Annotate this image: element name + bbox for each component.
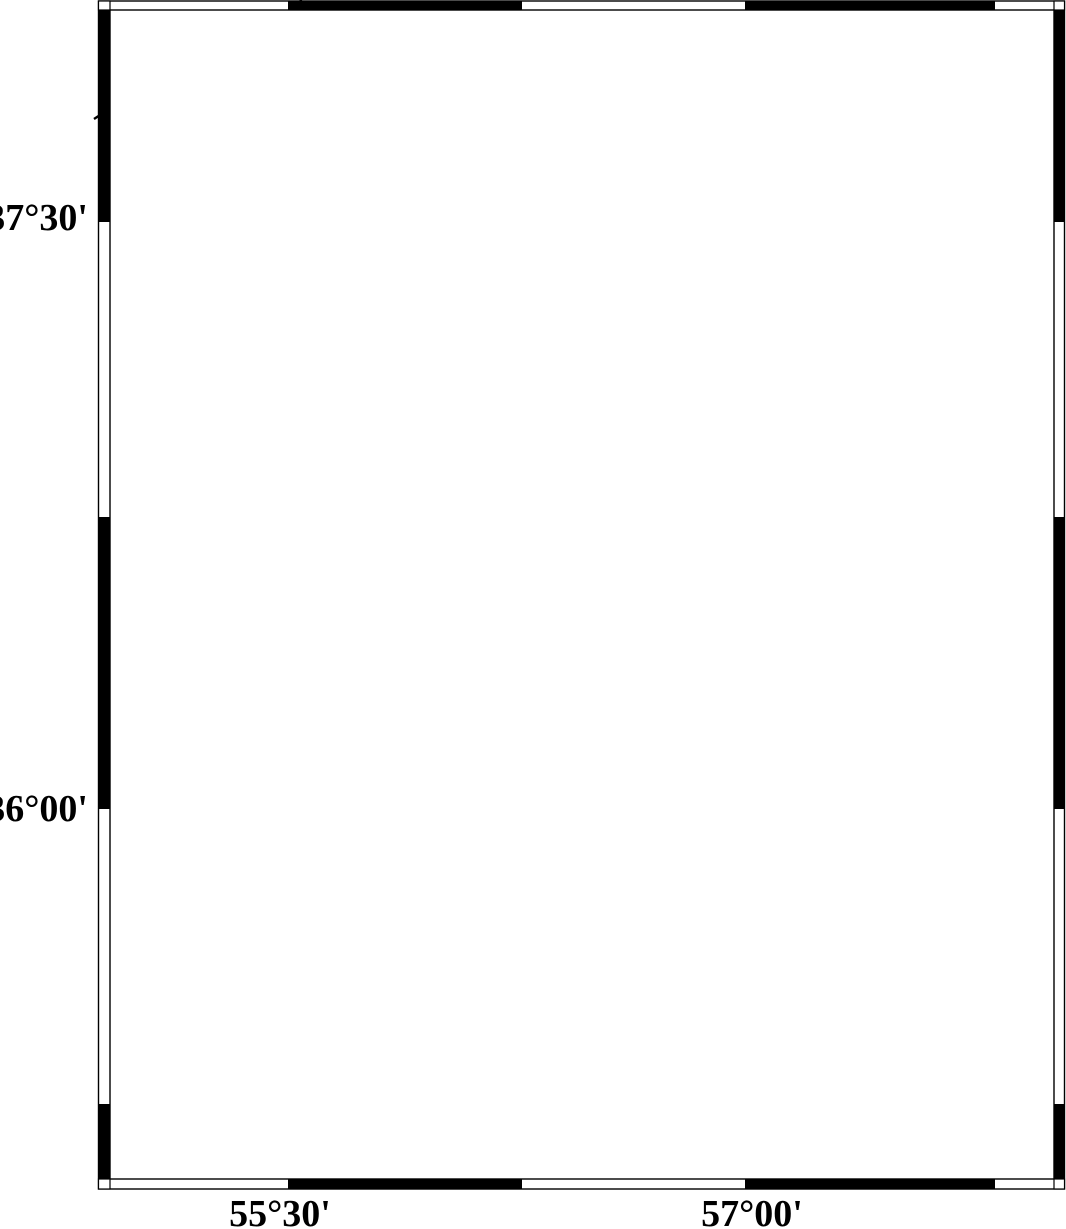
frame-seg [745, 1179, 995, 1189]
frame-seg [1054, 10, 1065, 222]
frame-seg [1054, 1104, 1065, 1179]
frame-seg [99, 517, 110, 809]
lat-label-36-00: 36°00' [0, 788, 88, 830]
lon-label-55-30: 55°30' [229, 1193, 331, 1229]
map-canvas: 60 km Magnitude 34567 37°30' 36°00' 55 [0, 0, 1066, 1229]
lon-label-57-00: 57°00' [701, 1193, 803, 1229]
frame-seg [745, 2, 995, 11]
frame-seg [99, 10, 110, 222]
seismicity-map: 60 km Magnitude 34567 37°30' 36°00' 55 [0, 0, 1066, 1229]
frame-seg [99, 1104, 110, 1179]
frame-inner [110, 10, 1054, 1179]
frame-corner [99, 1179, 111, 1189]
map-frame [99, 1, 1065, 1189]
lat-label-37-30: 37°30' [0, 197, 88, 239]
frame-corner [1054, 1179, 1065, 1189]
frame-corner [99, 1, 111, 10]
frame-seg [288, 1179, 522, 1189]
frame-seg [288, 2, 522, 11]
frame-seg [1054, 517, 1065, 809]
frame-corner [1054, 1, 1065, 10]
